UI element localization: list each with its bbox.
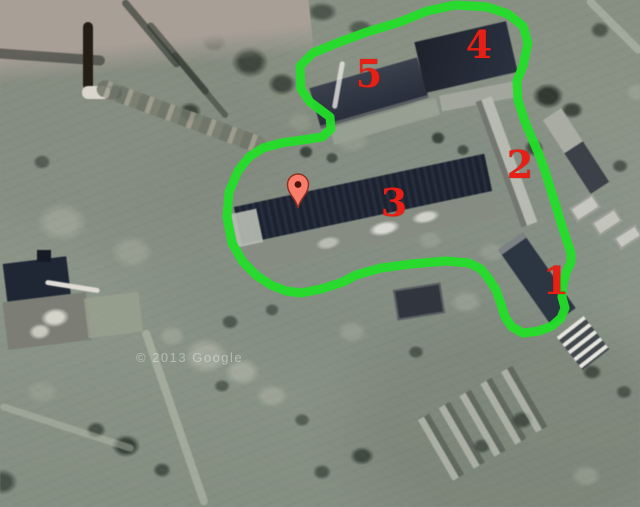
map-pin-marker[interactable] xyxy=(288,174,309,208)
map-pin-body xyxy=(288,174,309,208)
annotation-overlay xyxy=(0,0,640,507)
satellite-map-image: 1 2 3 4 5 © 2013 Google xyxy=(0,0,640,507)
building-label-3: 3 xyxy=(381,184,407,222)
google-watermark: © 2013 Google xyxy=(136,350,243,365)
building-label-1: 1 xyxy=(543,262,569,300)
building-label-2: 2 xyxy=(507,146,533,184)
building-label-4: 4 xyxy=(466,26,492,64)
map-pin-center-dot xyxy=(295,181,302,188)
building-label-5: 5 xyxy=(356,55,382,93)
